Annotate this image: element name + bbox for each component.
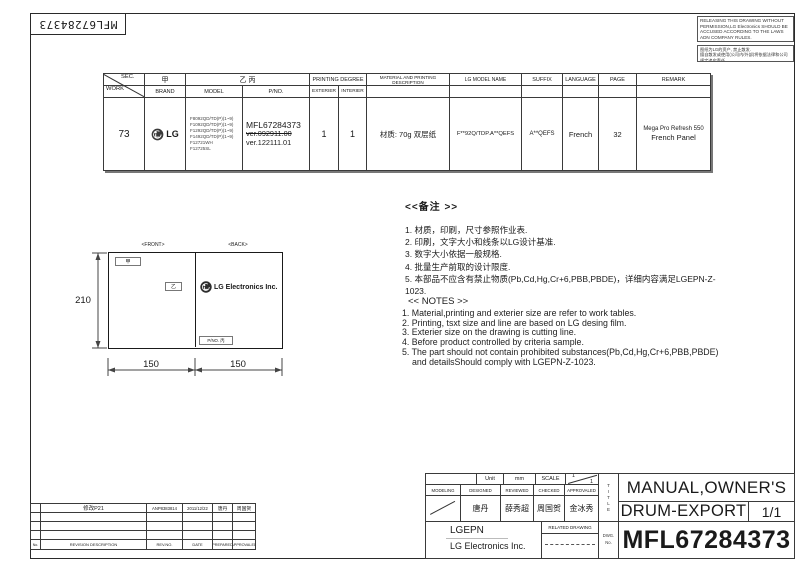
unit-label: Unit <box>477 474 503 484</box>
dwg-label: DWG. <box>603 533 614 540</box>
notes-en-title: << NOTES >> <box>402 296 747 307</box>
spec-table: 甲 乙 丙 PRINTING DEGREE MATERIAL AND PRINT… <box>103 73 711 171</box>
dwg-number: MFL67284373 <box>622 526 790 555</box>
col-jia: 甲 <box>145 74 185 85</box>
staff-table: Unit mm SCALE 1 1 MODELING DESIGNED REVI… <box>425 473 599 522</box>
release-warning-cn: 图纸为LG的资产, 禁止散发. 擅自散发或使用(公司内/外部)将依据法律和公司规… <box>697 45 794 62</box>
front-width-dimension: 150 <box>136 359 166 370</box>
notes-en: << NOTES >> 1. Material,printing and ext… <box>402 296 747 367</box>
rev-footer-approved: APPROVALED <box>233 540 255 549</box>
title-line2-cell: DRUM-EXPORT <box>618 501 749 522</box>
modeling-label: MODELING <box>426 485 460 495</box>
scale-denominator: 1 <box>590 479 593 484</box>
release-warning-box: RELEASING THIS DRAWING WITHOUT PERMISSIO… <box>697 16 794 62</box>
model-item: F1492QD/TD(P)(1~9) <box>190 134 233 140</box>
rev-footer-description: REVISION DESCRIPTION <box>41 540 146 549</box>
designed-name: 唐丹 <box>461 496 500 521</box>
company-cell: LGEPN LG Electronics Inc. <box>426 522 542 558</box>
rev-date-cell: 2011/12/22 <box>183 504 212 512</box>
cell-material: 材质: 70g 双层纸 <box>367 98 449 170</box>
col-interier: INTERIER <box>339 86 366 97</box>
remark-line1: Mega Pro Refresh 550 <box>643 125 703 133</box>
lg-brand-text: LG <box>166 129 179 139</box>
notes-cn-item: 2. 印刷，文字大小和线条以LG设计基准. <box>405 236 725 248</box>
title-line1: MANUAL,OWNER'S <box>627 478 787 498</box>
release-warning-en: RELEASING THIS DRAWING WITHOUT PERMISSIO… <box>697 16 794 42</box>
rev-footer-date: DATE <box>183 540 212 549</box>
rev-prepared-cell: 唐丹 <box>213 504 232 512</box>
rev-footer-no: No. <box>31 540 40 549</box>
cell-exterier: 1 <box>310 98 338 170</box>
scale-label: SCALE <box>536 474 565 484</box>
col-suffix: SUFFIX <box>522 74 562 85</box>
sheet-no-cell: 1/1 <box>748 501 795 522</box>
modeling-slash-cell <box>426 496 460 521</box>
work-label: WORK <box>106 86 124 92</box>
col-yi-bing: 乙 丙 <box>186 74 309 85</box>
rev-footer-prepared: PREPARED <box>213 540 232 549</box>
rev-revno-cell: ANP8383814 <box>147 504 182 512</box>
dwg-no-cell: DWG. No. <box>599 522 618 558</box>
notes-cn-item: 1. 材质，印刷，尺寸参照作业表. <box>405 224 725 236</box>
rev-no-cell <box>31 504 40 512</box>
title-vertical-cell: TITLE <box>598 473 619 522</box>
col-language: LANGUAGE <box>563 74 598 85</box>
checked-name: 周国贺 <box>534 496 564 521</box>
rotated-part-number-box: MFL67284373 <box>30 13 126 35</box>
notes-cn: <<备注 >> 1. 材质，印刷，尺寸参照作业表. 2. 印刷，文字大小和线条以… <box>405 198 725 297</box>
cell-work: 73 <box>104 98 144 170</box>
sheet-no: 1/1 <box>762 504 781 520</box>
col-page: PAGE <box>599 74 636 85</box>
rev-footer-revno: REV.NO. <box>147 540 182 549</box>
notes-cn-item: 3. 数字大小依据一般规格. <box>405 248 725 260</box>
reviewed-name: 薛秀超 <box>501 496 533 521</box>
rotated-part-number: MFL67284373 <box>39 18 117 31</box>
title-line2: DRUM-EXPORT <box>621 502 747 521</box>
col-brand: BRAND <box>145 86 185 97</box>
related-drawing-value <box>542 534 598 558</box>
lg-logo-icon <box>151 128 164 141</box>
cell-models: F8092QD/TD(P)(1~9) F1092QD/TD(P)(1~9) F1… <box>186 98 242 170</box>
cell-interier: 1 <box>339 98 366 170</box>
cell-brand: LG <box>145 98 185 170</box>
approvaled-name: 金冰秀 <box>565 496 598 521</box>
sec-label: SEC. <box>121 74 135 80</box>
col-printing-degree: PRINTING DEGREE <box>310 74 366 85</box>
checked-label: CHECKED <box>534 485 564 495</box>
cell-remark: Mega Pro Refresh 550 French Panel <box>637 98 710 170</box>
notes-cn-title: <<备注 >> <box>405 198 725 213</box>
scale-numerator: 1 <box>572 474 575 479</box>
dwg-no-label: No. <box>605 540 612 547</box>
col-lg-model: LG MODEL NAME <box>450 74 521 85</box>
scale-value-cell: 1 1 <box>566 474 598 484</box>
drawing-sheet: MFL67284373 RELEASING THIS DRAWING WITHO… <box>0 0 802 567</box>
col-exterier: EXTERIER <box>310 86 338 97</box>
col-material: MATERIAL AND PRINTING DESCRIPTION <box>367 74 449 85</box>
rev-description-cell: 修改P21 <box>41 504 146 512</box>
company-full: LG Electronics Inc. <box>450 541 541 551</box>
company-strip: LGEPN LG Electronics Inc. RELATED DRAWIN… <box>425 521 619 559</box>
company-short: LGEPN <box>450 525 541 536</box>
col-pno: P/NO. <box>243 86 309 97</box>
warning-cn-line2: 擅自散发或使用(公司内/外部)将依据法律和公司规定追究责任 <box>700 52 791 62</box>
revision-table: 修改P21 ANP8383814 2011/12/22 唐丹 周国贺 No. R… <box>30 503 256 550</box>
pno-new-version: ver.122111.01 <box>246 139 301 147</box>
dimension-lines <box>88 248 293 380</box>
height-dimension: 210 <box>72 294 94 306</box>
dwg-number-cell: MFL67284373 <box>618 521 795 559</box>
unit-value: mm <box>504 474 535 484</box>
notes-cn-item: 5. 本部品不应含有禁止物质(Pb,Cd,Hg,Cr+6,PBB,PBDE)，详… <box>405 273 725 297</box>
title-vertical-text: TITLE <box>606 483 611 513</box>
cell-suffix: A**QEFS <box>522 98 562 170</box>
back-width-dimension: 150 <box>223 359 253 370</box>
col-remark: REMARK <box>637 74 710 85</box>
col-model: MODEL <box>186 86 242 97</box>
notes-en-item: and detailsShould comply with LGEPN-Z-10… <box>402 358 747 368</box>
approvaled-label: APPROVALED <box>565 485 598 495</box>
rev-approved-cell: 周国贺 <box>233 504 255 512</box>
cell-language: French <box>563 98 598 170</box>
related-drawing-cell: RELATED DRAWING <box>542 522 599 558</box>
remark-line2: French Panel <box>643 133 703 144</box>
reviewed-label: REVIEWED <box>501 485 533 495</box>
cell-pno: MFL67284373 ver.092911.00 ver.122111.01 <box>243 98 309 170</box>
notes-cn-item: 4. 批量生产前取的设计限度. <box>405 261 725 273</box>
designed-label: DESIGNED <box>461 485 500 495</box>
title-line1-cell: MANUAL,OWNER'S <box>618 473 795 502</box>
cell-page: 32 <box>599 98 636 170</box>
model-item: F12725SL <box>190 146 233 152</box>
related-drawing-label: RELATED DRAWING <box>542 522 598 534</box>
cell-lg-model-name: F**92Q/TDP.A**QEFS <box>450 98 521 170</box>
